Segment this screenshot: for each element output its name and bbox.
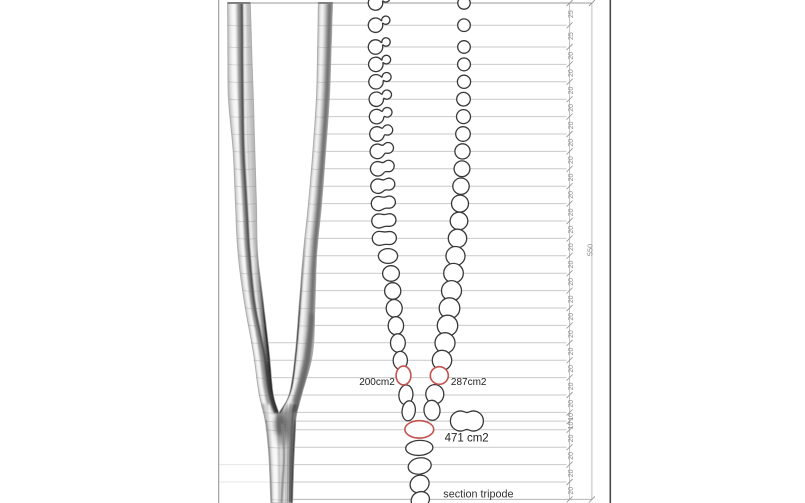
svg-text:471 cm2: 471 cm2 — [445, 432, 489, 444]
svg-text:25: 25 — [568, 10, 575, 18]
svg-text:20: 20 — [568, 226, 575, 234]
svg-text:20: 20 — [568, 435, 575, 443]
svg-text:20: 20 — [568, 348, 575, 356]
svg-text:20: 20 — [568, 87, 575, 95]
svg-text:20: 20 — [568, 365, 575, 373]
svg-text:20: 20 — [568, 243, 575, 251]
svg-text:200cm2: 200cm2 — [359, 377, 395, 388]
svg-text:20: 20 — [568, 313, 575, 321]
svg-text:20: 20 — [568, 52, 575, 60]
svg-text:20: 20 — [568, 330, 575, 338]
svg-text:20: 20 — [568, 69, 575, 77]
svg-text:287cm2: 287cm2 — [451, 377, 487, 388]
svg-text:10: 10 — [568, 413, 575, 421]
svg-text:20: 20 — [568, 295, 575, 303]
svg-text:20: 20 — [568, 191, 575, 199]
svg-text:25: 25 — [568, 32, 575, 40]
svg-text:20: 20 — [568, 382, 575, 390]
svg-text:20: 20 — [568, 400, 575, 408]
svg-text:20: 20 — [568, 121, 575, 129]
svg-text:20: 20 — [568, 469, 575, 477]
svg-text:section tripode: section tripode — [443, 488, 513, 500]
svg-text:20: 20 — [568, 208, 575, 216]
svg-text:10: 10 — [568, 422, 575, 430]
svg-text:20: 20 — [568, 104, 575, 112]
svg-text:20: 20 — [568, 452, 575, 460]
svg-text:20: 20 — [568, 261, 575, 269]
svg-text:20: 20 — [568, 487, 575, 495]
svg-text:20: 20 — [568, 139, 575, 147]
svg-text:20: 20 — [568, 278, 575, 286]
svg-text:20: 20 — [568, 156, 575, 164]
svg-text:550: 550 — [586, 244, 595, 257]
svg-text:20: 20 — [568, 174, 575, 182]
